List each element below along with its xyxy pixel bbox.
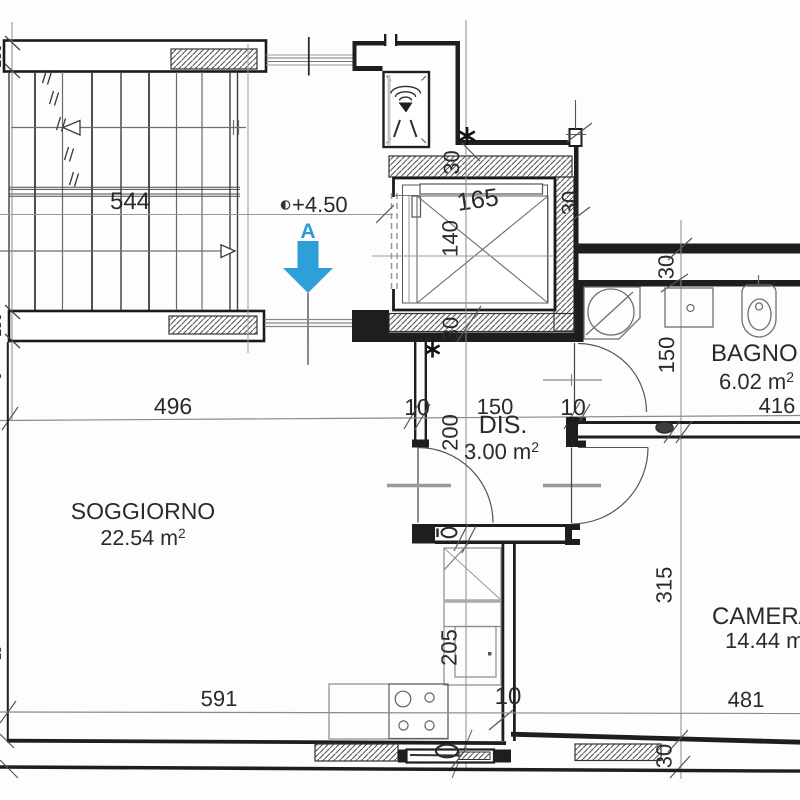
svg-text:+4.50: +4.50 [292, 192, 348, 217]
svg-text:165: 165 [455, 183, 500, 217]
svg-text:205: 205 [437, 629, 462, 666]
svg-text:30: 30 [439, 150, 464, 174]
svg-text:CAMERA: CAMERA [712, 603, 800, 630]
svg-text:6.02 m2: 6.02 m2 [719, 369, 794, 394]
svg-text:SOGGIORNO: SOGGIORNO [71, 498, 215, 524]
svg-text:544: 544 [110, 188, 150, 215]
svg-text:250: 250 [0, 313, 4, 337]
svg-text:25: 25 [0, 646, 4, 660]
svg-text:BAGNO: BAGNO [711, 340, 798, 367]
svg-text:140: 140 [438, 220, 463, 257]
svg-text:30: 30 [557, 191, 582, 215]
svg-text:150: 150 [654, 337, 679, 374]
svg-text:14.44 m2: 14.44 m2 [725, 628, 800, 653]
svg-text:10: 10 [404, 394, 430, 420]
svg-text:30: 30 [654, 255, 679, 279]
svg-text:30: 30 [652, 744, 677, 768]
svg-text:250: 250 [0, 44, 4, 68]
svg-text:A: A [300, 220, 315, 243]
svg-text:DIS.: DIS. [479, 411, 528, 439]
svg-text:315: 315 [652, 567, 677, 604]
svg-text:10: 10 [495, 683, 522, 710]
svg-text:22.54 m2: 22.54 m2 [100, 526, 185, 550]
svg-text:481: 481 [728, 687, 765, 712]
svg-text:496: 496 [154, 393, 192, 419]
svg-text:3.00 m2: 3.00 m2 [464, 439, 539, 464]
svg-text:200: 200 [438, 414, 463, 451]
svg-text:591: 591 [201, 686, 238, 711]
svg-text:10: 10 [560, 394, 586, 420]
svg-text:0: 0 [0, 372, 4, 379]
svg-text:416: 416 [759, 393, 796, 418]
